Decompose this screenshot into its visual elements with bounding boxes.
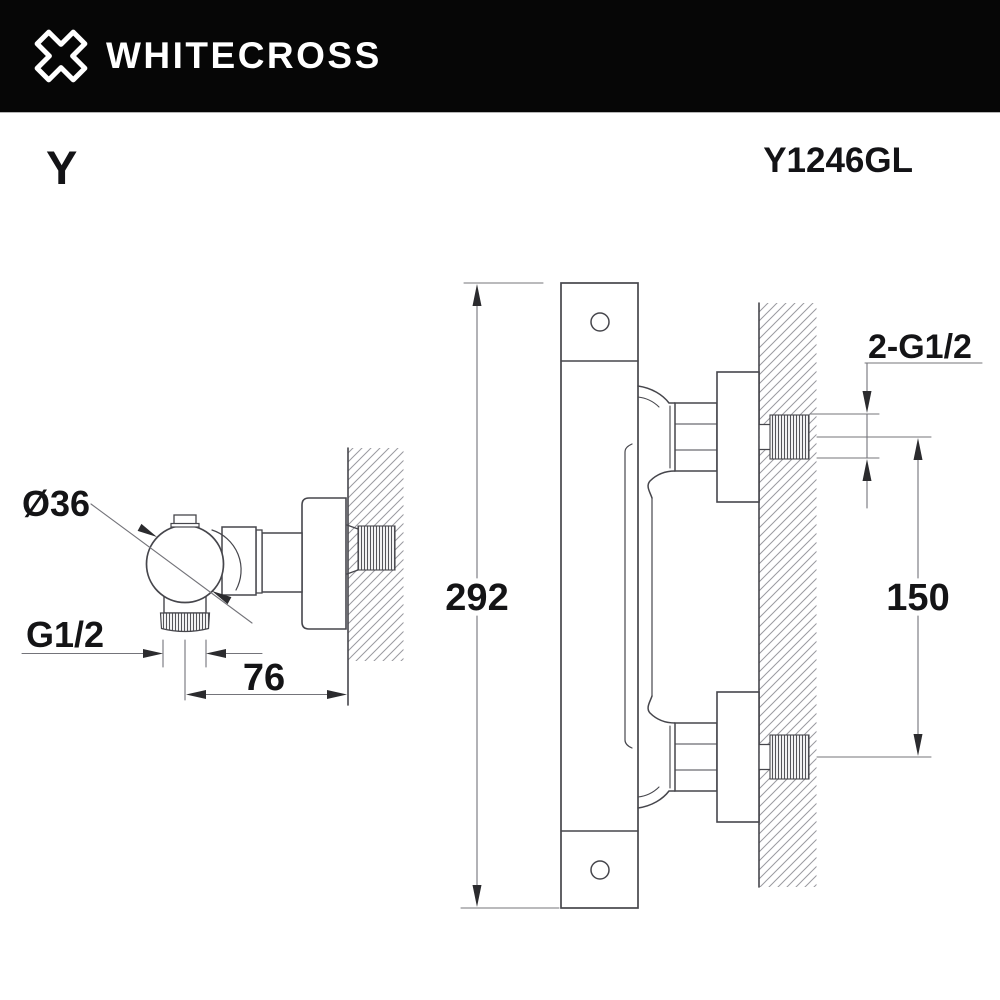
side-view-pipe xyxy=(262,533,302,592)
side-view-outlet-thread xyxy=(161,613,210,632)
mixer-column xyxy=(561,283,638,908)
whitecross-logo-icon xyxy=(30,25,92,87)
dim-label-total-height: 292 xyxy=(445,577,508,619)
front-view: 292 150 2-G1/2 xyxy=(445,283,982,908)
brand-header: WHITECROSS xyxy=(0,0,1000,113)
side-view-flange xyxy=(302,498,346,629)
dim-total-height: 292 xyxy=(445,283,559,908)
top-arm xyxy=(638,386,675,498)
brand-name: WHITECROSS xyxy=(106,35,382,77)
product-series-label: Y xyxy=(46,140,77,195)
dim-wall-connection-thread: 2-G1/2 xyxy=(810,328,982,508)
bottom-arm xyxy=(638,696,675,808)
dim-outlet-thread: G1/2 xyxy=(22,614,262,700)
product-model-label: Y1246GL xyxy=(763,141,913,181)
dim-label-connection-spacing: 150 xyxy=(886,577,949,619)
dim-label-diameter: Ø36 xyxy=(22,483,90,524)
bottom-mounting-hole xyxy=(591,861,609,879)
dim-label-wall-connection-thread: 2-G1/2 xyxy=(868,328,972,366)
side-view-ring xyxy=(256,530,262,593)
dim-wall-distance: 76 xyxy=(186,657,347,699)
dim-label-wall-distance: 76 xyxy=(243,657,285,699)
dim-label-outlet-thread: G1/2 xyxy=(26,614,104,655)
front-view-wall-hatch xyxy=(760,303,817,887)
side-view-knob-cap xyxy=(171,515,199,527)
side-view: Ø36 G1/2 76 xyxy=(22,448,404,705)
top-mounting-hole xyxy=(591,313,609,331)
dim-connection-spacing: 150 xyxy=(817,437,950,757)
side-view-knob-circle xyxy=(147,526,224,603)
